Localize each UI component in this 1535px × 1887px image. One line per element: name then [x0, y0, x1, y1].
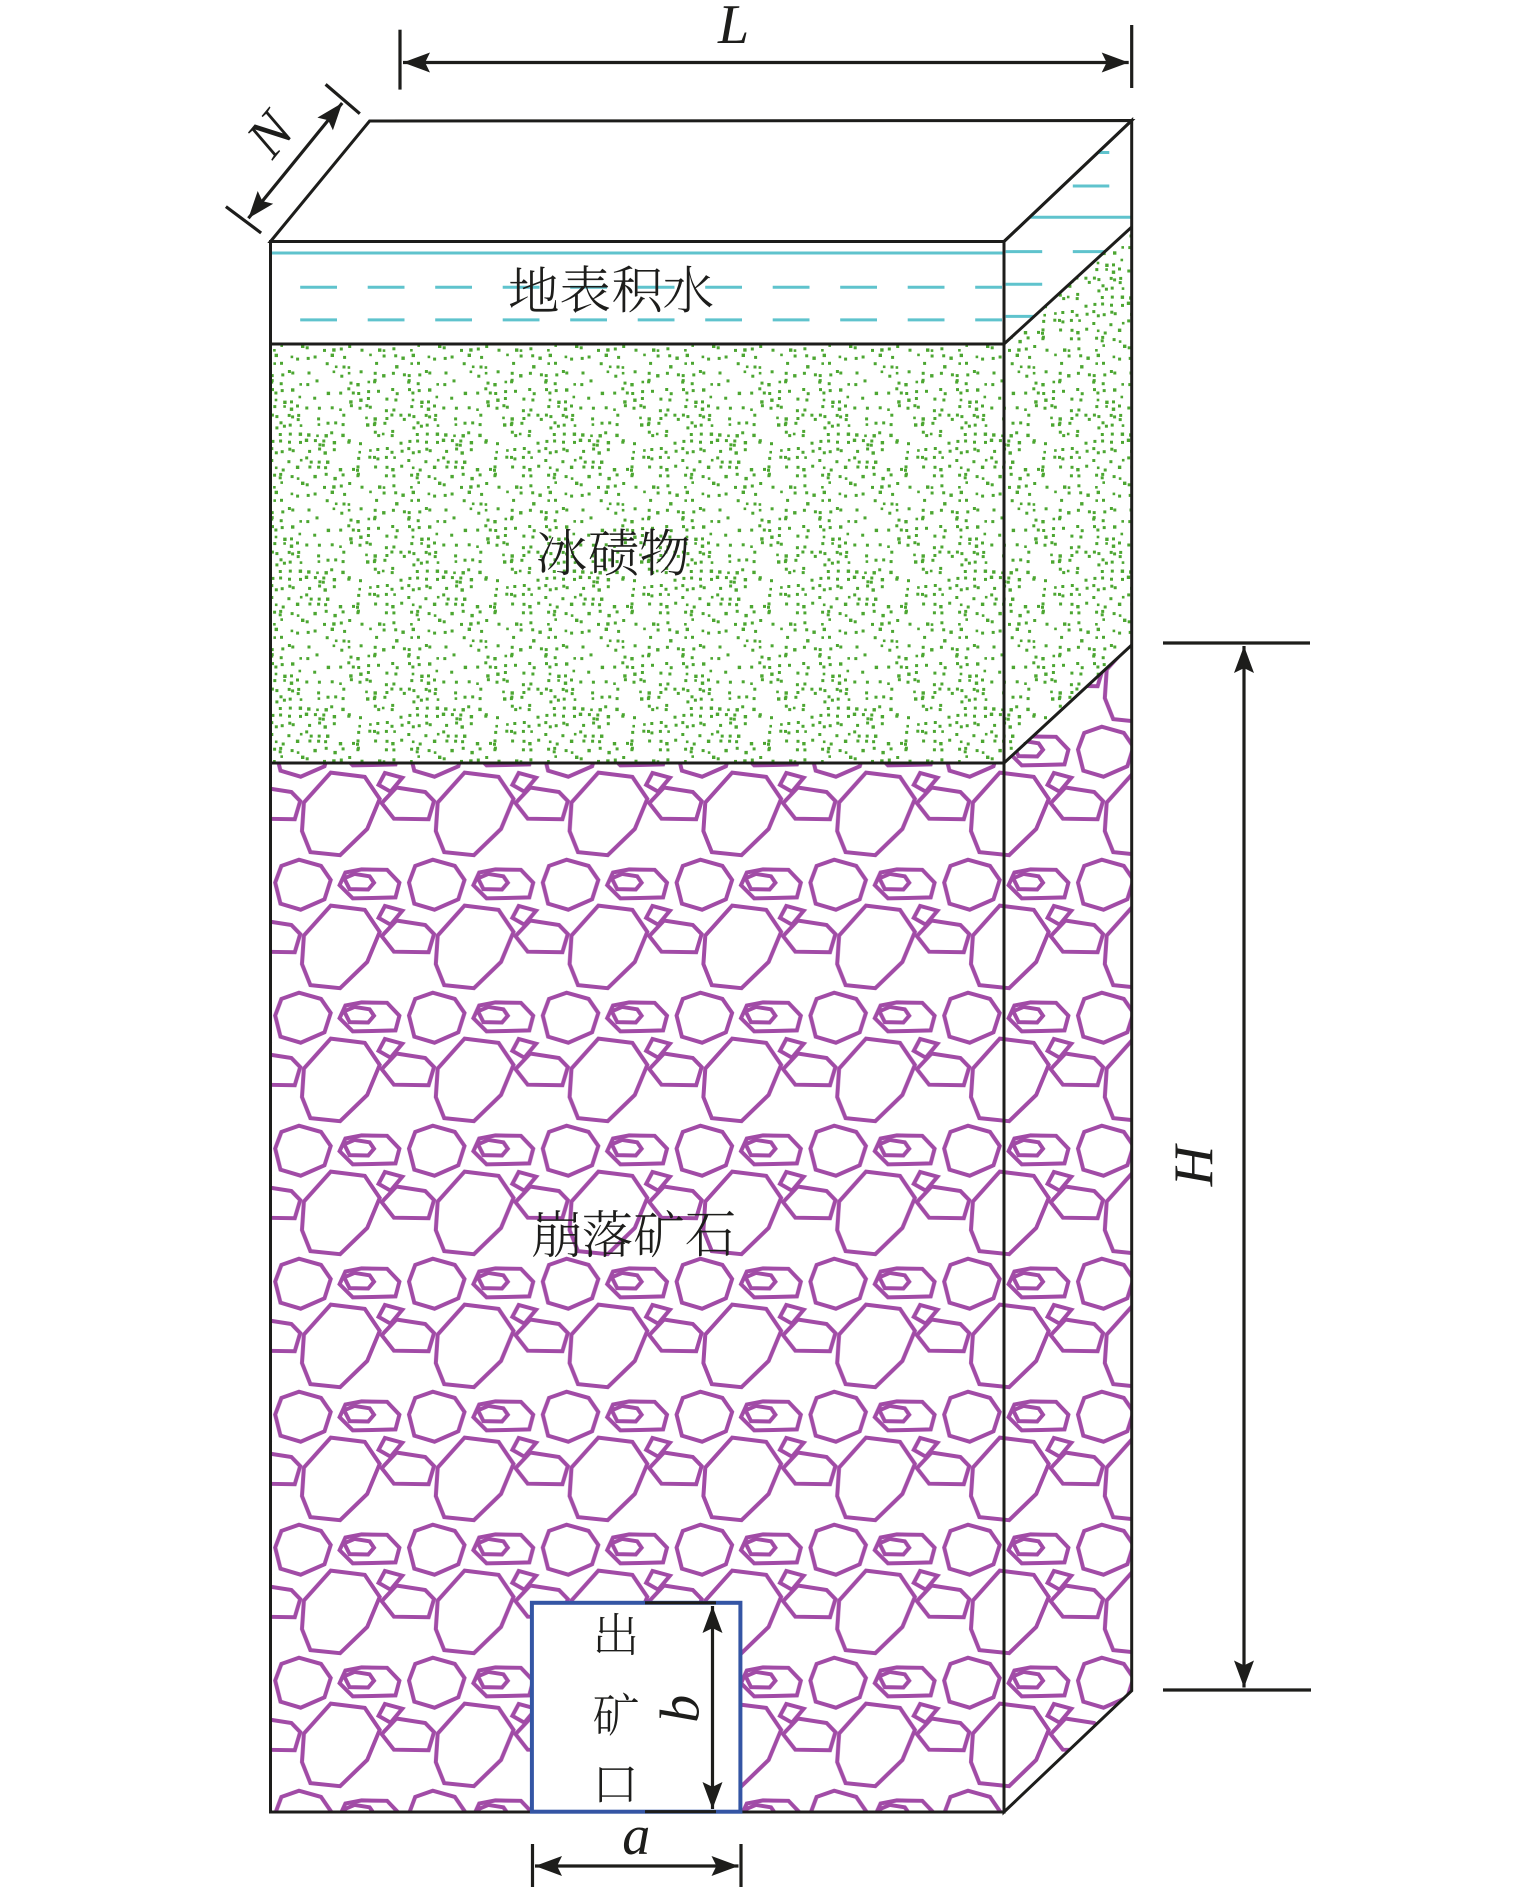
svg-text:a: a	[622, 1805, 650, 1867]
svg-text:H: H	[1163, 1143, 1225, 1187]
svg-text:L: L	[717, 0, 749, 56]
svg-text:b: b	[650, 1695, 712, 1723]
